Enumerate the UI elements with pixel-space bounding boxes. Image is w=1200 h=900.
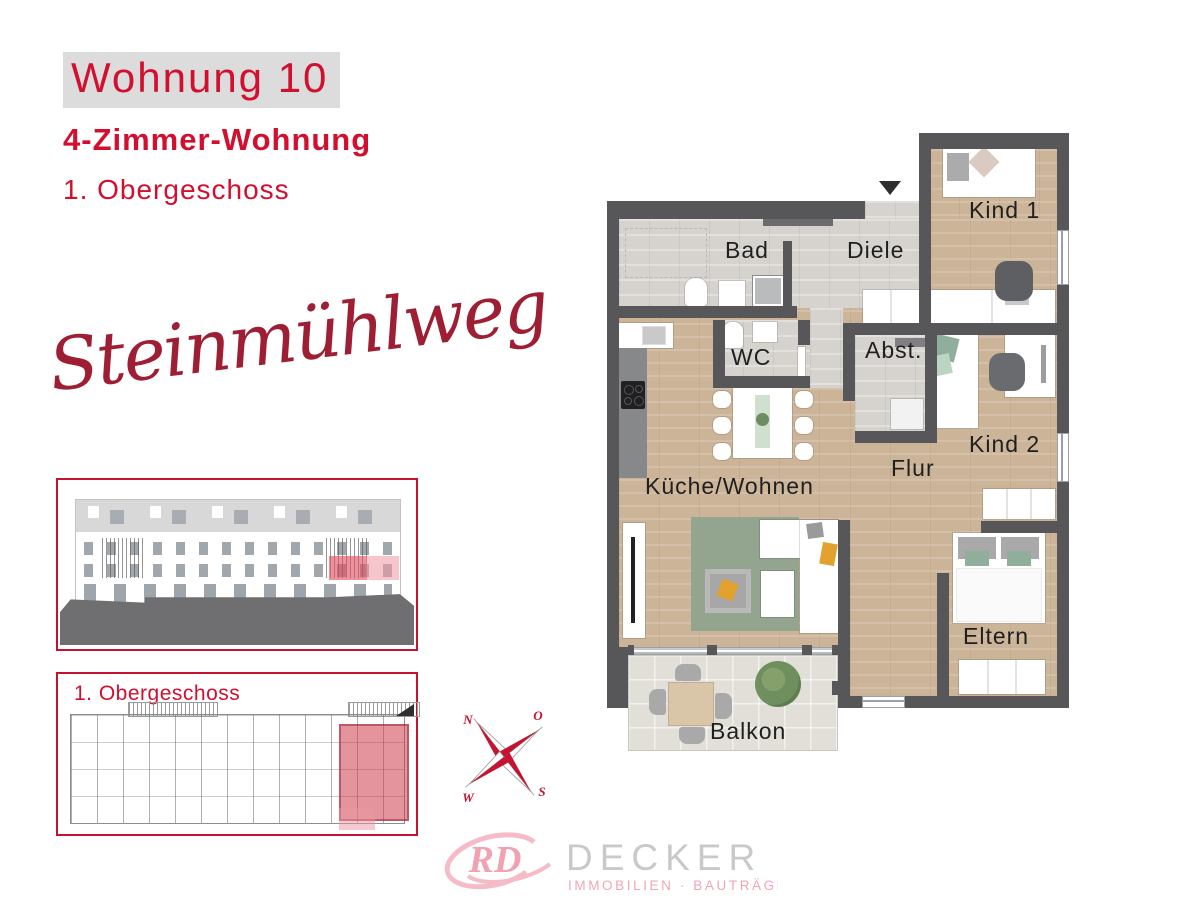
wall-left: [607, 201, 619, 647]
compass-west-label: W: [462, 790, 475, 805]
room-label-wc: WC: [731, 344, 771, 371]
unit-type-subtitle: 4-Zimmer-Wohnung: [63, 122, 371, 158]
compass-east-label: O: [533, 708, 543, 723]
page-title: Wohnung 10: [63, 52, 340, 108]
entrance-arrow-icon: [879, 181, 901, 195]
balcony-table: [669, 683, 713, 725]
elevation-balcony-railing: [102, 538, 144, 578]
wall-bad-diele: [783, 241, 792, 310]
dining-chair: [795, 391, 813, 408]
eltern-wardrobe: [959, 660, 1045, 694]
room-label-kind1: Kind 1: [969, 197, 1040, 224]
room-label-kueche-wohnen: Küche/Wohnen: [645, 473, 814, 500]
wall-bad-bottom: [619, 306, 797, 318]
unit-highlight-light: [366, 556, 399, 580]
window-kind2: [1057, 433, 1069, 482]
compass-north-label: N: [462, 712, 473, 727]
brochure-page: Wohnung 10 4-Zimmer-Wohnung 1. Obergesch…: [0, 0, 1200, 900]
floor-overview-panel: 1. Obergeschoss: [56, 672, 418, 836]
stove-burner: [635, 385, 643, 393]
overview-unit-highlight: [339, 724, 409, 821]
wall-balcony-stub: [832, 681, 840, 695]
dining-chair: [713, 417, 731, 434]
bad-toilet: [685, 278, 707, 306]
unit-highlight: [329, 556, 367, 580]
wall-right: [1057, 482, 1069, 696]
floor-plan: Bad Diele Kind 1 WC Abst. Kind 2 Flur Kü…: [607, 133, 1077, 758]
bad-sink: [719, 281, 745, 306]
stove-burner: [634, 396, 644, 406]
kind1-desk: [931, 290, 1055, 324]
tile-floor-corridor: [810, 308, 843, 388]
abst-washer: [891, 399, 923, 429]
room-label-kind2: Kind 2: [969, 431, 1040, 458]
room-label-eltern: Eltern: [963, 623, 1029, 650]
compass-rose: N O S W: [443, 698, 565, 816]
diele-ledge: [763, 219, 833, 226]
door-frame-post: [832, 645, 838, 655]
sofa-cushion-gray: [806, 522, 824, 539]
diele-wardrobe: [863, 290, 919, 323]
balcony-chair: [715, 693, 732, 719]
kitchen-sink: [643, 327, 665, 344]
wall-abst-right: [925, 335, 937, 443]
eltern-cushion-green: [1007, 551, 1031, 566]
room-label-flur: Flur: [891, 455, 935, 482]
balcony-chair: [675, 664, 701, 681]
logo-company-name: DECKER: [566, 837, 762, 878]
wall-kind2-eltern: [981, 521, 1069, 533]
logo-tagline: IMMOBILIEN · BAUTRÄGER: [568, 878, 778, 893]
wall-eltern-left: [937, 573, 949, 696]
eltern-duvet: [957, 569, 1041, 621]
window-kind1: [1057, 230, 1069, 285]
eltern-cushion-green: [965, 551, 989, 566]
wc-door-leaf: [798, 347, 805, 377]
room-label-balkon: Balkon: [710, 718, 786, 745]
wall-living-flur: [838, 520, 850, 696]
wall-right: [1057, 285, 1069, 433]
company-logo: RD DECKER IMMOBILIEN · BAUTRÄGER: [438, 820, 778, 900]
door-frame-post: [707, 645, 717, 655]
wall-room-divider: [843, 323, 1069, 335]
wc-sink: [753, 322, 777, 342]
wall-wc-bottom: [713, 376, 810, 388]
bad-dashed-outline: [625, 228, 707, 278]
table-plant: [756, 413, 769, 426]
dining-chair: [795, 443, 813, 460]
floor-subtitle: 1. Obergeschoss: [63, 174, 290, 206]
kind1-chair: [995, 261, 1033, 301]
compass-south-label: S: [538, 784, 545, 799]
project-name-script: Steinmühlweg: [44, 277, 441, 408]
window-flur: [862, 696, 905, 708]
wall-right: [1057, 145, 1069, 230]
overview-balcony-highlight: [339, 808, 375, 830]
balcony-chair: [679, 727, 705, 744]
stove-burner: [624, 397, 632, 405]
stove-burner: [624, 385, 634, 395]
wall-top-left: [607, 201, 865, 219]
wall-bottom: [905, 696, 1069, 708]
sofa-ottoman: [761, 571, 794, 617]
room-label-diele: Diele: [847, 237, 904, 264]
tv-screen: [631, 537, 635, 623]
dining-chair: [795, 417, 813, 434]
kind1-pillow: [947, 153, 969, 181]
kind2-chair: [989, 353, 1025, 391]
wall-abst-left: [843, 335, 855, 401]
wall-kind1-top: [919, 133, 1069, 149]
dining-chair: [713, 443, 731, 460]
door-frame-post: [628, 645, 634, 655]
bad-shower: [753, 276, 783, 306]
kind2-monitor: [1041, 345, 1046, 383]
kind2-sideboard: [983, 489, 1055, 519]
logo-monogram: RD: [468, 839, 522, 881]
room-label-abstellraum: Abst.: [865, 337, 922, 364]
wall-left-corner: [607, 647, 628, 708]
elevation-roof-windows: [110, 510, 390, 524]
dining-chair: [713, 391, 731, 408]
tile-floor-entry: [865, 201, 919, 219]
balcony-chair: [649, 689, 666, 715]
door-frame-post: [802, 645, 812, 655]
room-label-bad: Bad: [725, 237, 769, 264]
wall-kind1-left: [919, 133, 931, 325]
elevation-panel: [56, 478, 418, 651]
kitchen-counter: [619, 348, 647, 478]
wall-bottom: [838, 696, 862, 708]
balcony-plant: [755, 661, 801, 707]
wall-wc-door-stub: [798, 320, 810, 345]
